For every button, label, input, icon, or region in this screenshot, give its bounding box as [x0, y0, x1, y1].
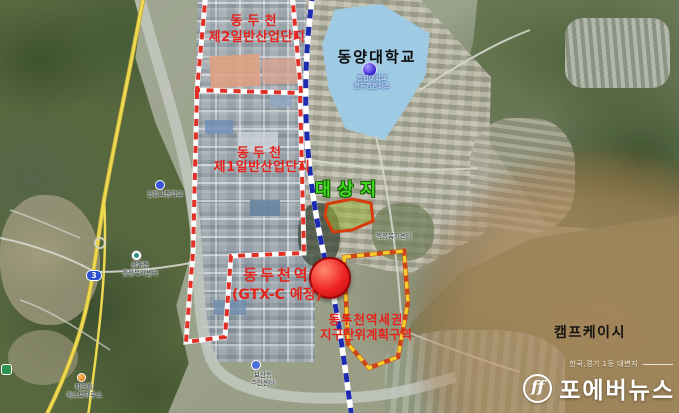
guesthouse-marker [77, 373, 86, 382]
map-label-community: 보산동 주민센터 [251, 372, 275, 388]
highway-casing [46, 0, 144, 413]
watermark-rule [643, 364, 673, 365]
watermark-slogan-row: 한국,경기 1등 대변지 [523, 359, 673, 369]
watermark-slogan: 한국,경기 1등 대변지 [569, 359, 638, 369]
station-district-label-line2: 지구단위계획구역 [320, 324, 412, 343]
community-center-marker [251, 360, 261, 370]
target-site-polygon [325, 199, 373, 232]
camp-casey-label: 캠프케이시 [554, 322, 626, 342]
map-label-campus: 동양대학교 동두천캠퍼스 [354, 75, 390, 91]
industrial2-label-line2: 제2일반산업단지 [209, 26, 306, 45]
brand-logo-glyph: ff [531, 379, 544, 395]
map-label-office-west-line2: 행정복지센터 [122, 270, 158, 278]
map-label-school: 신흥고등학교 [147, 191, 183, 199]
station-label-line2: (GTX-C 예정) [232, 284, 322, 304]
office-marker-dot [134, 253, 139, 258]
map-label-office-east: 행정복지센터 [376, 233, 412, 241]
industrial1-label-line2: 제1일반산업단지 [214, 156, 311, 175]
map-canvas: 3 신흥고등학교 동양대학교 동두천캠퍼스 상패동 행정복지센터 보산동 주민센… [0, 0, 679, 413]
university-label: 동양대학교 [337, 46, 416, 67]
map-label-campus-line2: 동두천캠퍼스 [354, 83, 390, 91]
watermark-brand-row: ff 포에버뉴스 [523, 371, 675, 405]
station-label-line1: 동두천역 [243, 264, 310, 285]
brand-logo-icon: ff [523, 374, 552, 403]
route-3-badge: 3 [86, 270, 102, 281]
target-site-label: 대상지 [315, 175, 383, 200]
brand-name: 포에버뉴스 [559, 371, 675, 405]
map-label-community-line2: 주민센터 [251, 380, 275, 388]
highway-spur [88, 200, 105, 413]
map-label-guesthouse: 파인힐 게스트하우스 [66, 384, 102, 400]
route-badge-green [1, 364, 12, 375]
watermark: 한국,경기 1등 대변지 ff 포에버뉴스 [523, 359, 675, 405]
local-roads [0, 30, 530, 372]
map-label-guesthouse-line2: 게스트하우스 [66, 392, 102, 400]
map-label-office-west: 상패동 행정복지센터 [122, 262, 158, 278]
school-marker [155, 180, 165, 190]
